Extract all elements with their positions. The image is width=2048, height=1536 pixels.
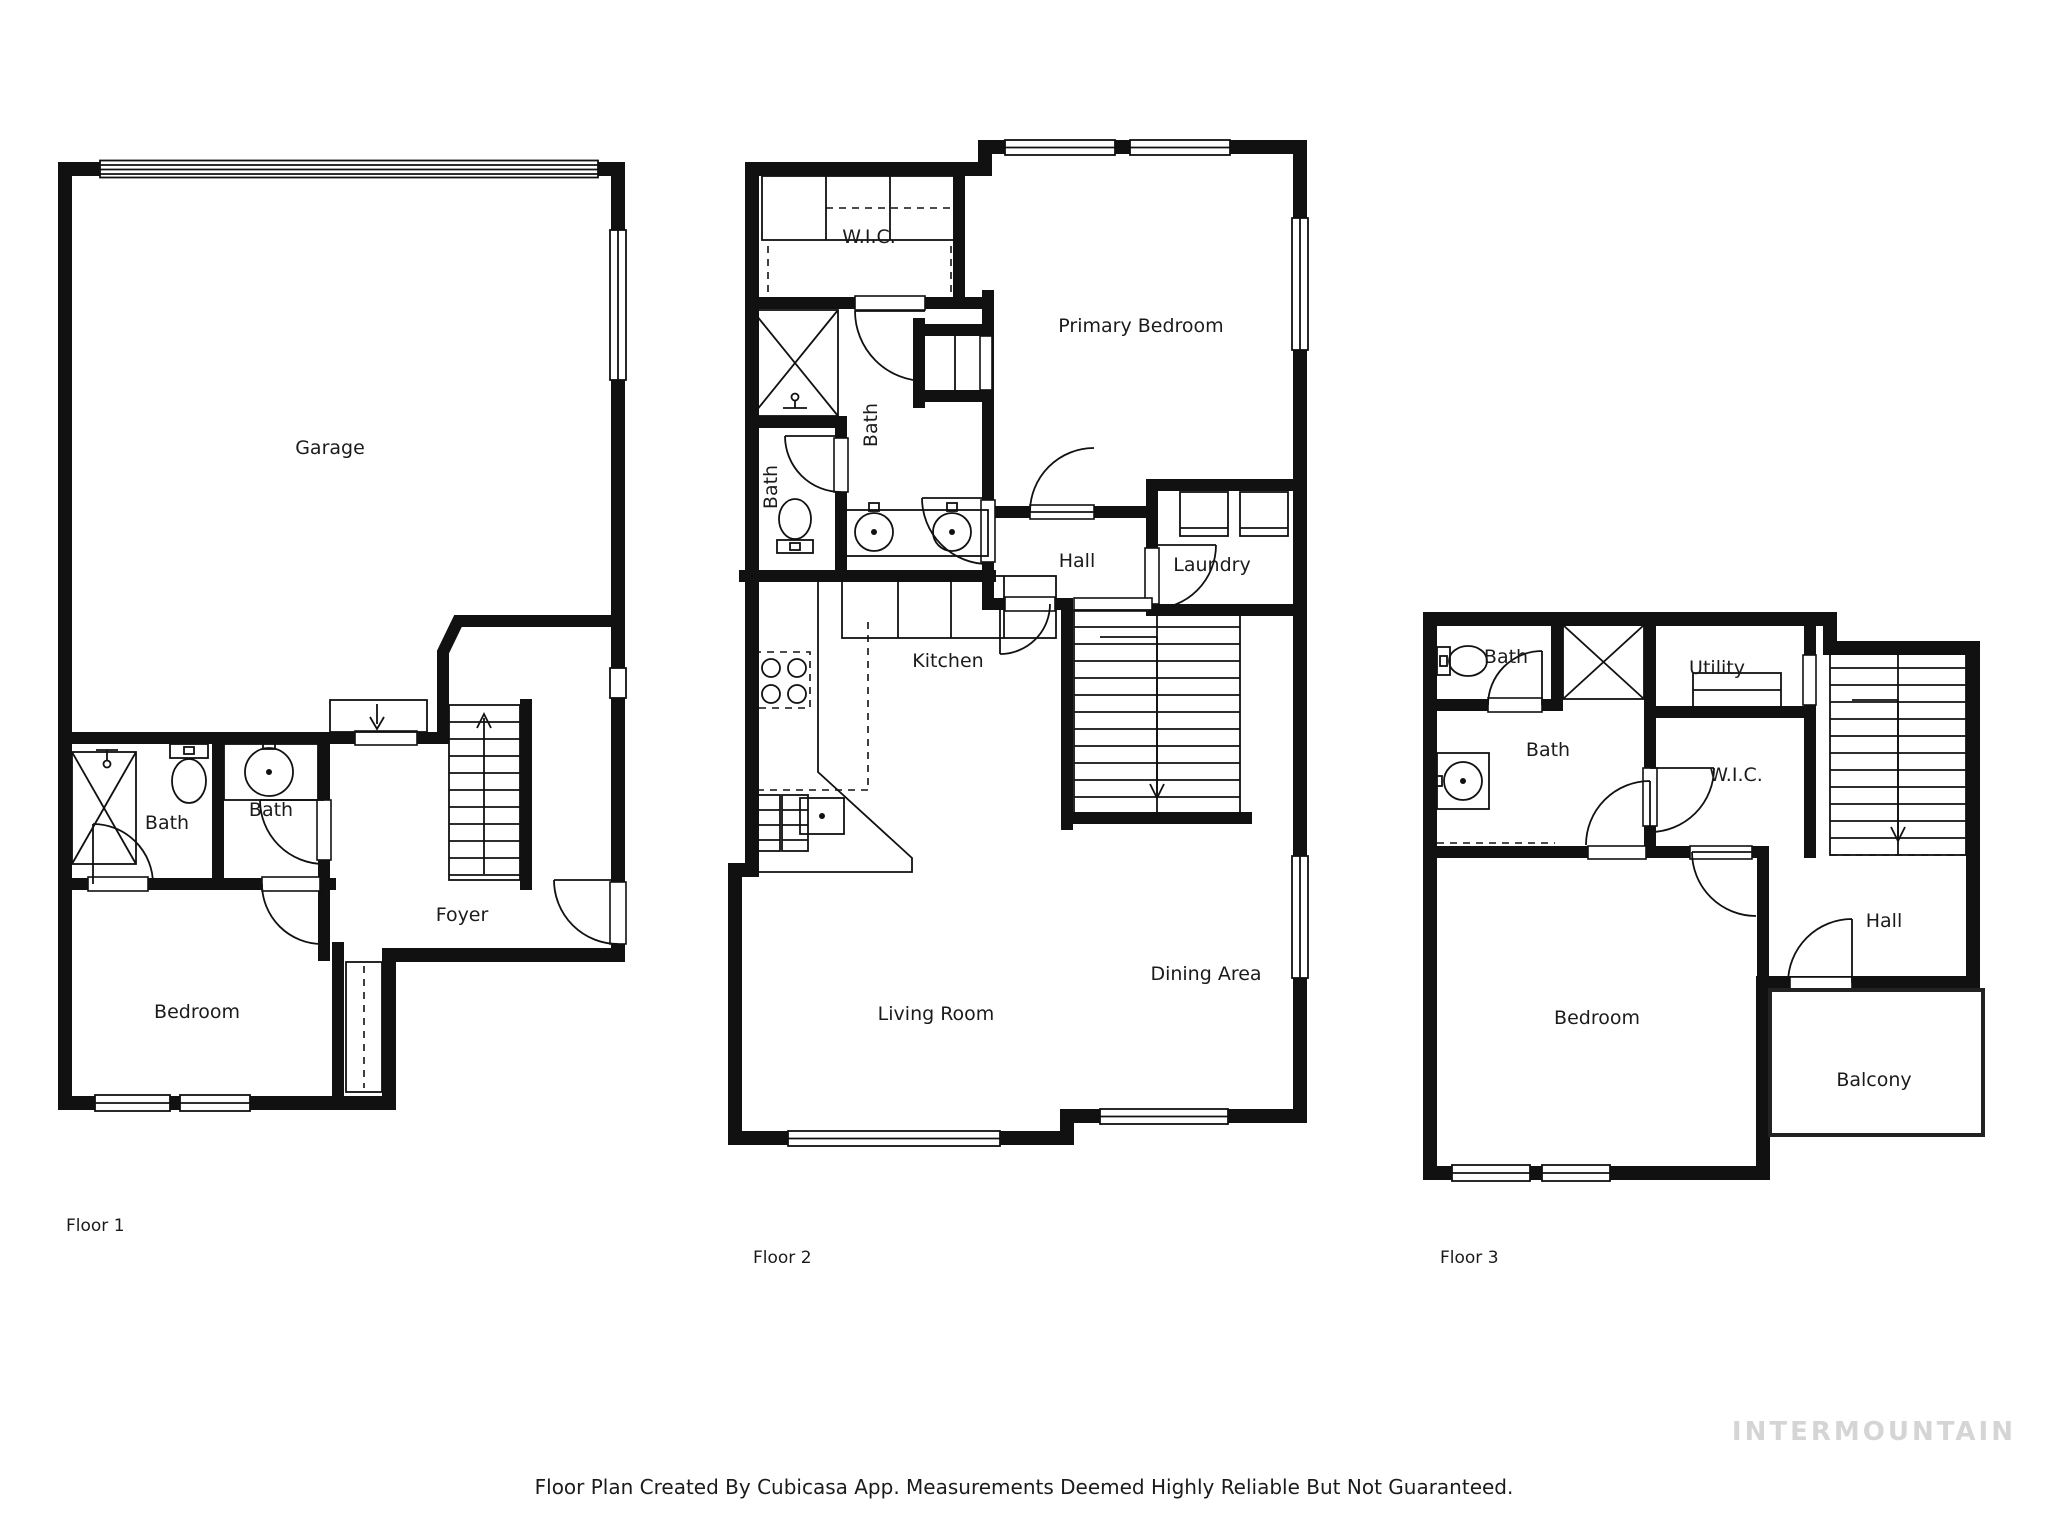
room-label-f2-primary-bedroom: Primary Bedroom bbox=[1058, 315, 1223, 337]
room-label-f3-hall: Hall bbox=[1866, 910, 1903, 932]
room-label-f3-wic: W.I.C. bbox=[1709, 764, 1763, 786]
room-label-f3-balcony: Balcony bbox=[1836, 1069, 1911, 1091]
floorplan-page: Garage Bath Bath Bedroom Foyer W.I.C. Pr… bbox=[0, 0, 2048, 1536]
room-label-f2-bath-main: Bath bbox=[860, 403, 882, 447]
room-label-garage: Garage bbox=[295, 437, 365, 459]
room-label-f2-bath-small: Bath bbox=[760, 465, 782, 509]
room-label-f2-hall: Hall bbox=[1059, 550, 1096, 572]
footer-caption: Floor Plan Created By Cubicasa App. Meas… bbox=[535, 1475, 1514, 1499]
floor2-label: Floor 2 bbox=[753, 1248, 812, 1268]
floor2-walls bbox=[735, 147, 1300, 1138]
room-label-f2-living-room: Living Room bbox=[878, 1003, 995, 1025]
room-label-f3-bath-main: Bath bbox=[1526, 739, 1570, 761]
room-label-f2-wic: W.I.C. bbox=[842, 226, 896, 248]
floor1-label: Floor 1 bbox=[66, 1216, 125, 1236]
floor1-walls bbox=[65, 169, 618, 1103]
floor3-label: Floor 3 bbox=[1440, 1248, 1499, 1268]
room-label-f3-utility: Utility bbox=[1689, 657, 1745, 679]
watermark-text: INTERMOUNTAIN bbox=[1732, 1417, 2016, 1447]
room-label-f2-dining-area: Dining Area bbox=[1150, 963, 1261, 985]
room-label-f2-laundry: Laundry bbox=[1173, 554, 1250, 576]
room-label-f1-bedroom: Bedroom bbox=[154, 1001, 240, 1023]
room-label-f3-bedroom: Bedroom bbox=[1554, 1007, 1640, 1029]
room-label-f1-bath-right: Bath bbox=[249, 799, 293, 821]
room-label-f1-foyer: Foyer bbox=[436, 904, 489, 926]
room-label-f3-bath-top: Bath bbox=[1484, 646, 1528, 668]
room-label-f1-bath-left: Bath bbox=[145, 812, 189, 834]
room-label-f2-kitchen: Kitchen bbox=[912, 650, 983, 672]
